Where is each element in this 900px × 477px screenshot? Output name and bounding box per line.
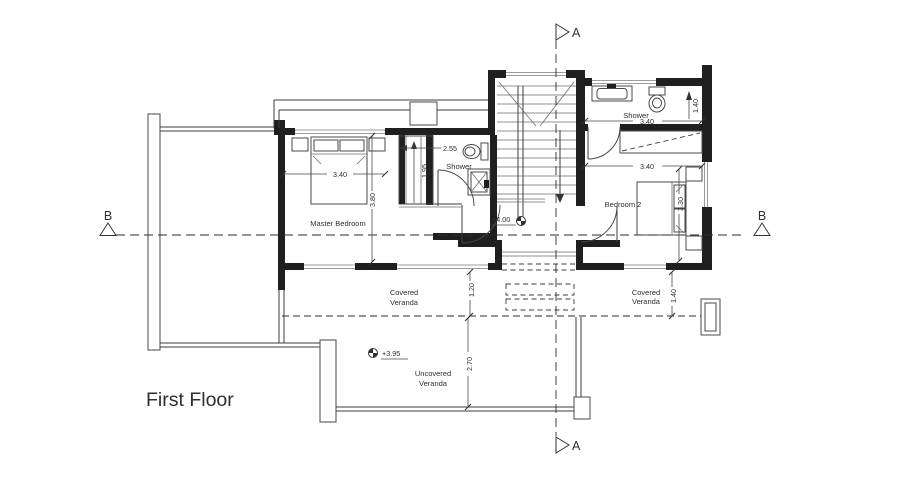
svg-text:2.55: 2.55 bbox=[443, 144, 457, 153]
hall-threshold bbox=[502, 252, 576, 310]
svg-text:3.40: 3.40 bbox=[333, 170, 347, 179]
column bbox=[701, 299, 720, 335]
section-label-a-top: A bbox=[572, 26, 581, 40]
nightstand bbox=[686, 236, 702, 250]
pillow bbox=[340, 140, 364, 151]
section-marker-a-top bbox=[556, 24, 569, 40]
door-shower-middle bbox=[438, 170, 474, 206]
svg-text:1.95: 1.95 bbox=[420, 164, 429, 178]
svg-text:1.20: 1.20 bbox=[467, 283, 476, 297]
dim-uncovered-depth: 2.70 bbox=[465, 315, 474, 410]
staircase bbox=[497, 82, 576, 222]
section-label-b-right: B bbox=[758, 209, 766, 223]
svg-text:Covered: Covered bbox=[632, 288, 660, 297]
section-marker-b-left bbox=[100, 223, 116, 236]
bedroom2-bed bbox=[637, 167, 702, 250]
svg-text:+3.95: +3.95 bbox=[382, 349, 400, 358]
dim-covered-right-depth: 1.40 bbox=[669, 269, 678, 319]
label-shower-middle: Shower bbox=[446, 162, 472, 171]
shower-stall-icon bbox=[468, 169, 490, 195]
column bbox=[574, 397, 590, 419]
level-marker-hall: +4.00 bbox=[491, 215, 526, 226]
svg-text:2.70: 2.70 bbox=[465, 357, 474, 371]
toilet-icon bbox=[463, 143, 488, 160]
label-covered-veranda-right: Covered Veranda bbox=[632, 288, 661, 306]
label-uncovered-veranda: Uncovered Veranda bbox=[415, 369, 451, 388]
section-marker-a-bottom bbox=[556, 437, 569, 453]
sink-icon bbox=[592, 84, 632, 101]
floor-plan-drawing: A A B B 3.40 3.80 1.95 2.55 3.40 bbox=[0, 0, 900, 477]
svg-text:Covered: Covered bbox=[390, 288, 418, 297]
section-marker-b-right bbox=[754, 223, 770, 236]
stair-arrow bbox=[556, 130, 564, 203]
dim-master-depth: 3.80 bbox=[368, 133, 377, 265]
dim-shower-top-recess: 1.40 bbox=[686, 91, 700, 119]
svg-text:3.80: 3.80 bbox=[368, 193, 377, 207]
label-master-bedroom: Master Bedroom bbox=[310, 219, 365, 228]
label-covered-veranda-left: Covered Veranda bbox=[390, 288, 419, 307]
label-bedroom-2: Bedroom 2 bbox=[605, 200, 642, 209]
svg-text:+4.00: +4.00 bbox=[492, 215, 510, 224]
pillow bbox=[314, 140, 338, 151]
door-bedroom2 bbox=[581, 206, 617, 242]
section-label-b-left: B bbox=[104, 209, 112, 223]
nightstand bbox=[292, 138, 308, 151]
roof-parapet bbox=[274, 100, 495, 128]
nightstand bbox=[369, 138, 385, 151]
floor-plan-canvas: A A B B 3.40 3.80 1.95 2.55 3.40 bbox=[0, 0, 900, 477]
svg-text:Uncovered: Uncovered bbox=[415, 369, 451, 378]
page-title: First Floor bbox=[146, 389, 234, 411]
toilet-icon bbox=[649, 87, 665, 112]
veranda-structures bbox=[279, 290, 720, 422]
label-shower-top: Shower bbox=[623, 111, 649, 120]
svg-text:Veranda: Veranda bbox=[632, 297, 661, 306]
level-marker-veranda: +3.95 bbox=[369, 349, 409, 360]
svg-text:3.40: 3.40 bbox=[640, 162, 654, 171]
svg-text:Veranda: Veranda bbox=[419, 379, 448, 388]
column bbox=[320, 340, 336, 422]
svg-text:1.40: 1.40 bbox=[669, 289, 678, 303]
door-shower-top bbox=[588, 127, 620, 159]
chimney-niche bbox=[410, 102, 437, 125]
dashed-step bbox=[506, 299, 574, 310]
section-label-a-bottom: A bbox=[572, 439, 581, 453]
dashed-step bbox=[506, 284, 574, 295]
bedroom2-wardrobe bbox=[620, 131, 702, 153]
svg-text:3.30: 3.30 bbox=[676, 197, 685, 211]
svg-text:1.40: 1.40 bbox=[691, 99, 700, 113]
dim-covered-left-depth: 1.20 bbox=[467, 269, 476, 319]
svg-text:Veranda: Veranda bbox=[390, 298, 419, 307]
